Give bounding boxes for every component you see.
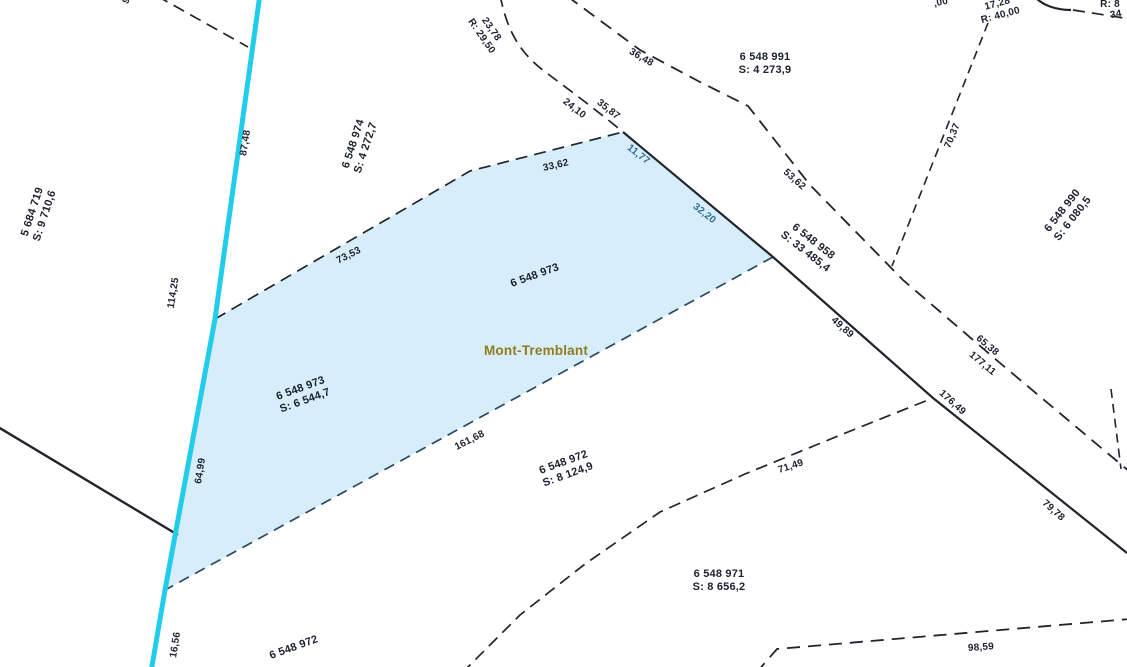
curved-boundary-north bbox=[500, 0, 623, 132]
road-near-edge bbox=[623, 132, 1127, 553]
boundary-top-left bbox=[157, 0, 248, 47]
map-canvas[interactable]: 87,48114,2564,9916,5673,5333,6224,1035,8… bbox=[0, 0, 1127, 667]
boundary-left-solid bbox=[0, 427, 178, 535]
parcel-6548973-highlight[interactable] bbox=[165, 132, 773, 590]
boundary-71-49 bbox=[462, 398, 933, 667]
topright-dashed bbox=[1073, 10, 1127, 19]
topright-curve bbox=[1034, 0, 1071, 10]
boundary-70-37 bbox=[892, 23, 988, 266]
map-linework bbox=[0, 0, 1127, 667]
boundary-98-59 bbox=[756, 619, 1127, 667]
